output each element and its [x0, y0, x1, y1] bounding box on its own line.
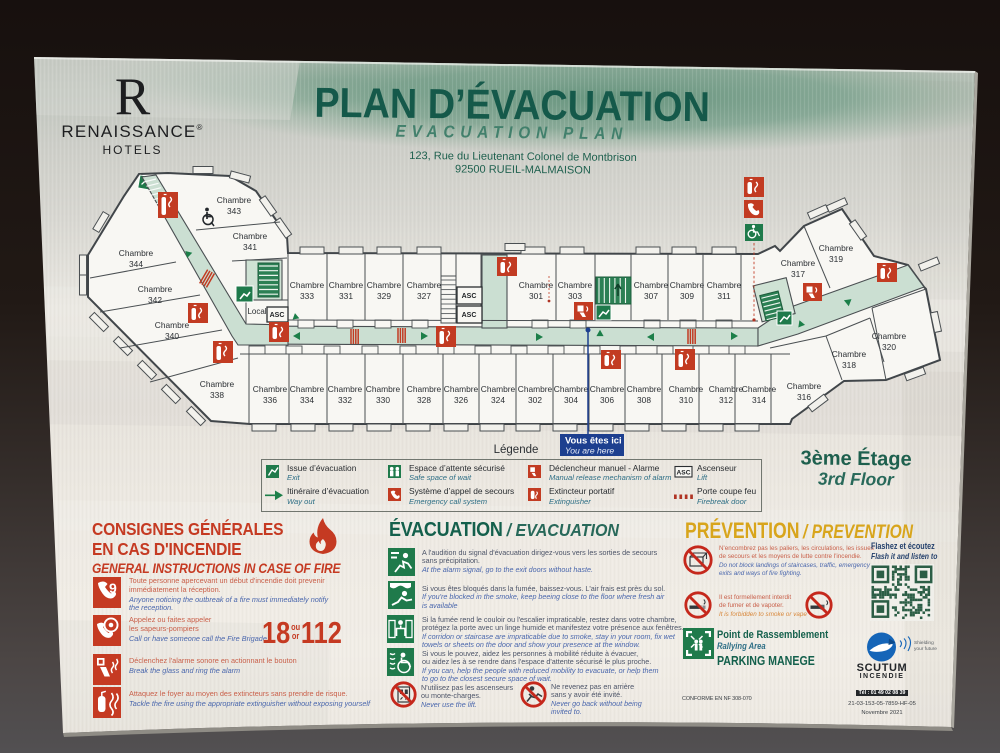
svg-text:314: 314 [752, 395, 766, 405]
svg-text:Local: Local [247, 307, 266, 316]
svg-text:Chambre: Chambre [590, 384, 625, 394]
svg-text:9: 9 [109, 580, 117, 596]
svg-text:You are here: You are here [565, 446, 614, 456]
svg-text:342: 342 [148, 295, 162, 305]
svg-text:303: 303 [568, 291, 582, 301]
svg-text:306: 306 [600, 395, 614, 405]
svg-text:Shielding: Shielding [914, 640, 934, 646]
svg-text:324: 324 [491, 395, 505, 405]
svg-text:Chambre: Chambre [481, 384, 516, 394]
svg-text:317: 317 [791, 269, 805, 279]
svg-text:Chambre: Chambre [407, 384, 442, 394]
svg-text:343: 343 [227, 206, 241, 216]
svg-text:Chambre: Chambre [819, 243, 854, 253]
svg-text:308: 308 [637, 395, 651, 405]
svg-text:Chambre: Chambre [367, 280, 402, 290]
svg-text:329: 329 [377, 291, 391, 301]
svg-text:Chambre: Chambre [709, 384, 744, 394]
svg-text:307: 307 [644, 291, 658, 301]
svg-text:Chambre: Chambre [781, 258, 816, 268]
svg-text:Chambre: Chambre [217, 195, 252, 205]
svg-text:338: 338 [210, 390, 224, 400]
svg-text:Chambre: Chambre [200, 379, 235, 389]
svg-text:ASC: ASC [677, 470, 691, 477]
svg-text:Chambre: Chambre [253, 384, 288, 394]
svg-text:ASC: ASC [462, 312, 477, 319]
svg-text:Chambre: Chambre [328, 384, 363, 394]
svg-text:301: 301 [529, 291, 543, 301]
svg-text:332: 332 [338, 395, 352, 405]
svg-text:330: 330 [376, 395, 390, 405]
svg-text:309: 309 [680, 291, 694, 301]
svg-text:Chambre: Chambre [669, 384, 704, 394]
svg-text:Chambre: Chambre [329, 280, 364, 290]
svg-text:Chambre: Chambre [407, 280, 442, 290]
svg-text:328: 328 [417, 395, 431, 405]
svg-text:Chambre: Chambre [558, 280, 593, 290]
svg-text:Chambre: Chambre [444, 384, 479, 394]
svg-text:ASC: ASC [462, 293, 477, 300]
svg-text:331: 331 [339, 291, 353, 301]
svg-text:ASC: ASC [270, 312, 285, 319]
svg-text:312: 312 [719, 395, 733, 405]
svg-text:Chambre: Chambre [290, 280, 325, 290]
svg-text:Chambre: Chambre [518, 384, 553, 394]
svg-text:Chambre: Chambre [872, 331, 907, 341]
svg-text:336: 336 [263, 395, 277, 405]
svg-text:Chambre: Chambre [742, 384, 777, 394]
svg-text:318: 318 [842, 360, 856, 370]
svg-text:Chambre: Chambre [119, 248, 154, 258]
svg-text:Vous êtes ici: Vous êtes ici [565, 435, 622, 446]
svg-text:326: 326 [454, 395, 468, 405]
svg-text:333: 333 [300, 291, 314, 301]
svg-text:320: 320 [882, 342, 896, 352]
svg-text:Chambre: Chambre [707, 280, 742, 290]
svg-text:Chambre: Chambre [670, 280, 705, 290]
svg-text:Chambre: Chambre [366, 384, 401, 394]
svg-text:Chambre: Chambre [290, 384, 325, 394]
svg-text:Chambre: Chambre [627, 384, 662, 394]
svg-text:Chambre: Chambre [634, 280, 669, 290]
svg-text:Chambre: Chambre [832, 349, 867, 359]
svg-text:341: 341 [243, 242, 257, 252]
svg-text:304: 304 [564, 395, 578, 405]
svg-text:Chambre: Chambre [554, 384, 589, 394]
svg-text:316: 316 [797, 392, 811, 402]
svg-text:310: 310 [679, 395, 693, 405]
svg-text:Chambre: Chambre [138, 284, 173, 294]
svg-text:340: 340 [165, 331, 179, 341]
svg-text:327: 327 [417, 291, 431, 301]
svg-text:your future: your future [914, 646, 937, 652]
svg-text:334: 334 [300, 395, 314, 405]
svg-text:Chambre: Chambre [519, 280, 554, 290]
svg-text:311: 311 [717, 291, 731, 301]
svg-text:Chambre: Chambre [787, 381, 822, 391]
svg-text:Chambre: Chambre [155, 320, 190, 330]
svg-text:Chambre: Chambre [233, 231, 268, 241]
svg-text:344: 344 [129, 259, 143, 269]
svg-text:319: 319 [829, 254, 843, 264]
svg-text:302: 302 [528, 395, 542, 405]
